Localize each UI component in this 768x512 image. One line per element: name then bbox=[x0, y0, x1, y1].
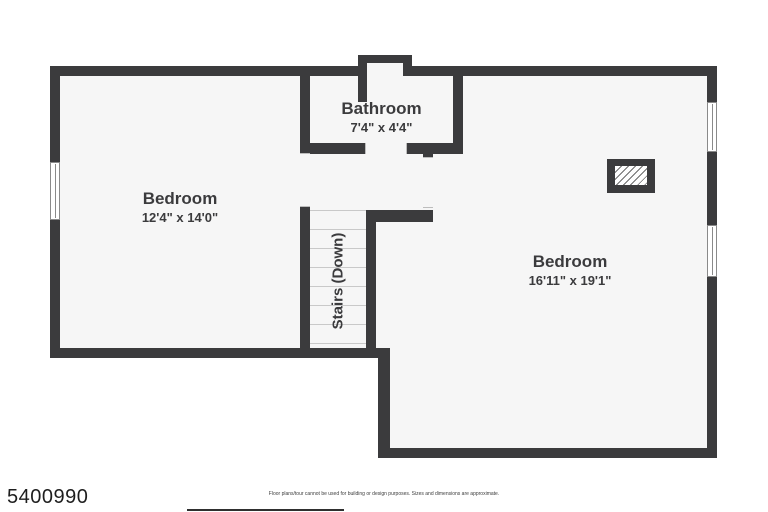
wall-segment bbox=[423, 143, 433, 157]
wall-segment bbox=[50, 66, 60, 162]
room-label-bedroom-right: Bedroom 16'11" x 19'1" bbox=[433, 252, 707, 290]
room-label-bathroom: Bathroom 7'4" x 4'4" bbox=[310, 99, 453, 137]
room-name: Bedroom bbox=[433, 252, 707, 272]
disclaimer-text: Floor plans/tour cannot be used for buil… bbox=[269, 491, 499, 498]
bedroom-left-door-opening bbox=[300, 153, 310, 207]
room-dimensions: 7'4" x 4'4" bbox=[310, 119, 453, 137]
wall-segment bbox=[403, 55, 412, 76]
wall-segment bbox=[378, 448, 717, 458]
room-dimensions: 16'11" x 19'1" bbox=[433, 272, 707, 290]
window-symbol bbox=[707, 225, 717, 277]
wall-segment bbox=[707, 277, 717, 448]
bedroom-right-door-opening bbox=[423, 157, 433, 208]
wall-segment bbox=[300, 207, 310, 358]
wall-segment bbox=[707, 152, 717, 225]
room-dimensions: 12'4" x 14'0" bbox=[60, 209, 300, 227]
stairs-label: Stairs (Down) bbox=[330, 233, 347, 330]
hallway-landing-area bbox=[310, 154, 433, 210]
wall-segment bbox=[300, 66, 310, 153]
bedroom-right-area bbox=[433, 154, 463, 448]
wall-segment bbox=[50, 220, 60, 358]
floorplan: Bedroom 12'4" x 14'0" Bathroom 7'4" x 4'… bbox=[0, 0, 768, 512]
chimney-symbol bbox=[607, 159, 655, 193]
wall-segment bbox=[358, 55, 367, 102]
wall-segment bbox=[50, 66, 358, 76]
window-symbol bbox=[707, 102, 717, 152]
wall-segment bbox=[378, 348, 390, 458]
listing-id: 5400990 bbox=[7, 487, 88, 507]
chimney-hatch bbox=[615, 166, 647, 185]
page-edge-line bbox=[187, 509, 344, 511]
bathroom-door-opening bbox=[365, 143, 407, 154]
room-label-bedroom-left: Bedroom 12'4" x 14'0" bbox=[60, 189, 300, 227]
bathroom-bumpout-area bbox=[367, 63, 403, 76]
bedroom-right-area bbox=[376, 222, 433, 348]
wall-segment bbox=[50, 348, 390, 358]
bedroom-right-area bbox=[390, 348, 433, 448]
room-name: Bathroom bbox=[310, 99, 453, 119]
wall-segment bbox=[366, 210, 433, 222]
wall-segment bbox=[707, 66, 717, 102]
wall-segment bbox=[453, 66, 463, 154]
wall-segment bbox=[366, 210, 376, 358]
room-name: Bedroom bbox=[60, 189, 300, 209]
window-symbol bbox=[50, 162, 60, 220]
